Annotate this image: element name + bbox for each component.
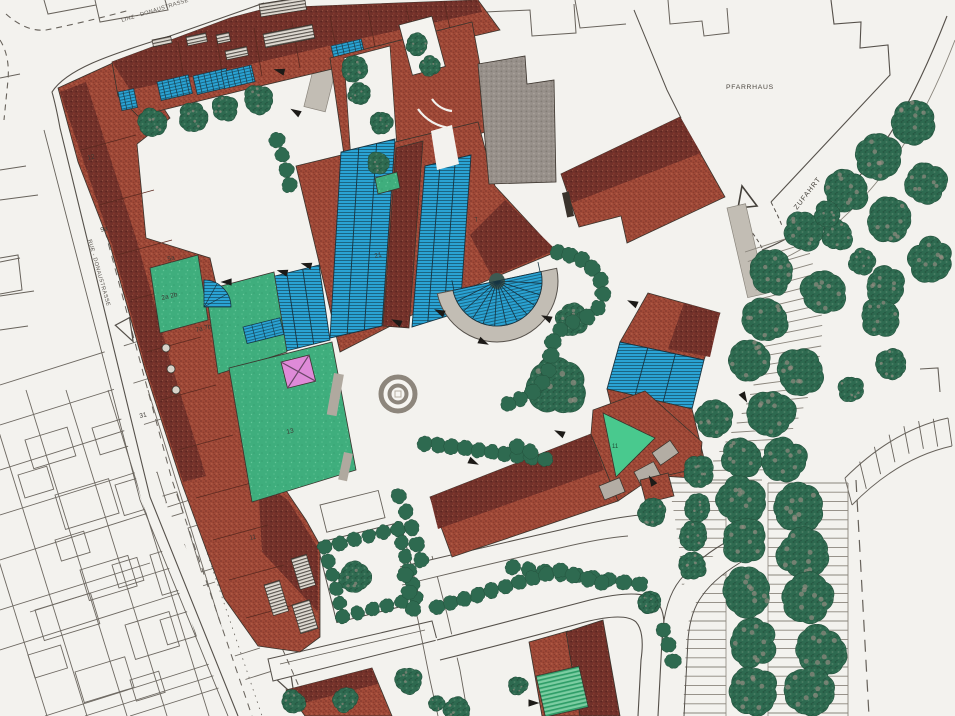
svg-text:PFARRHAUS: PFARRHAUS	[726, 84, 774, 91]
svg-text:11: 11	[612, 444, 619, 450]
